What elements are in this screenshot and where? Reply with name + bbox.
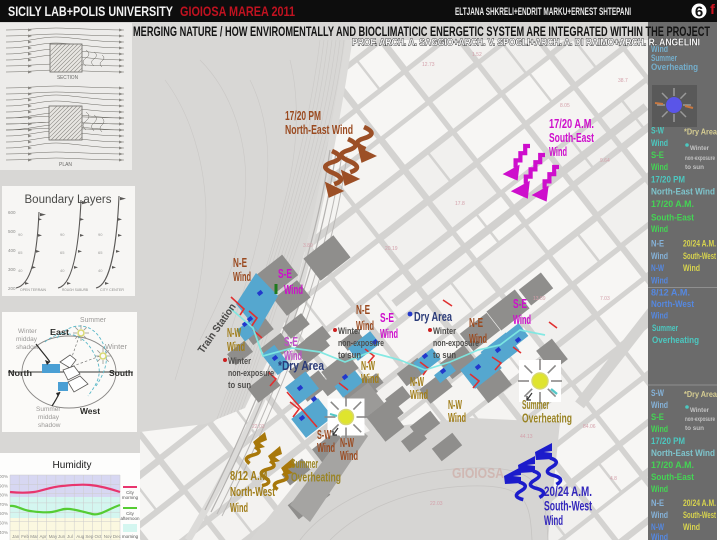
svg-text:Jan: Jan — [12, 534, 20, 539]
svg-text:70%: 70% — [0, 502, 8, 507]
svg-text:South-East: South-East — [549, 131, 595, 145]
svg-text:Aug: Aug — [76, 534, 85, 539]
svg-text:*Dry Area: *Dry Area — [278, 359, 325, 373]
svg-text:N-E: N-E — [356, 303, 370, 317]
svg-text:S-W: S-W — [317, 428, 331, 442]
svg-text:PLAN: PLAN — [59, 162, 72, 168]
svg-text:6: 6 — [695, 4, 703, 21]
svg-text:Dry Area: Dry Area — [414, 310, 453, 324]
svg-text:PROF. ARCH. A. SAGGIO+ARCH. V.: PROF. ARCH. A. SAGGIO+ARCH. V. SPOGLI+AR… — [352, 37, 700, 49]
svg-text:38.7: 38.7 — [618, 78, 628, 84]
svg-text:Wind: Wind — [544, 513, 563, 528]
svg-text:8/12 A.M.: 8/12 A.M. — [651, 288, 690, 298]
svg-text:Winter: Winter — [690, 145, 709, 152]
svg-text:Summer: Summer — [80, 317, 107, 324]
svg-text:SICILY LAB+POLIS UNIVERSITY: SICILY LAB+POLIS UNIVERSITY — [8, 3, 174, 19]
svg-text:17/20 A.M.: 17/20 A.M. — [651, 199, 694, 209]
svg-text:Wind: Wind — [448, 411, 466, 425]
svg-text:65: 65 — [60, 250, 65, 255]
svg-text:S-W: S-W — [651, 388, 664, 398]
svg-text:Sep: Sep — [85, 534, 94, 539]
svg-text:Wind: Wind — [513, 313, 531, 327]
svg-text:20.19: 20.19 — [385, 246, 398, 252]
svg-text:N-W: N-W — [448, 398, 462, 412]
svg-text:North-East Wind: North-East Wind — [651, 448, 715, 458]
svg-text:non-exposure: non-exposure — [685, 416, 715, 423]
svg-text:N-W: N-W — [361, 359, 375, 373]
svg-text:South: South — [109, 369, 133, 378]
svg-text:North: North — [8, 369, 32, 378]
svg-text:17/20 A.M.: 17/20 A.M. — [549, 117, 594, 131]
svg-text:80%: 80% — [0, 493, 8, 498]
svg-text:17/20 PM: 17/20 PM — [285, 109, 321, 123]
svg-text:South-West: South-West — [683, 510, 716, 520]
svg-text:Jun: Jun — [58, 534, 66, 539]
svg-text:44.13: 44.13 — [520, 434, 533, 440]
svg-text:Wind: Wind — [651, 251, 668, 261]
svg-text:S-E: S-E — [284, 335, 298, 349]
svg-text:shadow: shadow — [38, 422, 61, 429]
svg-text:morning: morning — [122, 534, 139, 539]
svg-text:20/24 A.M.: 20/24 A.M. — [683, 239, 716, 249]
svg-text:Feb: Feb — [21, 534, 29, 539]
svg-text:N-E: N-E — [651, 498, 664, 508]
svg-text:Wind: Wind — [651, 162, 668, 172]
svg-text:Winter: Winter — [338, 326, 361, 337]
svg-text:GIOIOSA MAREA 2011: GIOIOSA MAREA 2011 — [180, 3, 295, 19]
svg-text:Overheating: Overheating — [522, 412, 572, 426]
svg-text:500: 500 — [8, 229, 16, 234]
svg-text:North-East Wind: North-East Wind — [651, 187, 715, 197]
svg-text:N-W: N-W — [340, 436, 354, 450]
svg-text:12.73: 12.73 — [422, 62, 435, 68]
svg-text:Overheating: Overheating — [652, 335, 699, 345]
svg-text:17/20 PM: 17/20 PM — [651, 436, 685, 446]
svg-text:17/20 PM: 17/20 PM — [651, 174, 685, 184]
svg-text:Wind: Wind — [651, 424, 668, 434]
svg-text:65: 65 — [98, 250, 103, 255]
svg-text:Wind: Wind — [284, 283, 303, 297]
svg-text:South-West: South-West — [544, 499, 592, 514]
svg-text:to sun: to sun — [338, 350, 361, 361]
svg-text:shadow: shadow — [16, 344, 39, 351]
svg-text:N-E: N-E — [651, 239, 664, 249]
svg-text:100%: 100% — [0, 474, 8, 479]
svg-text:CITY CENTER: CITY CENTER — [100, 287, 124, 292]
svg-text:Wind: Wind — [469, 332, 487, 346]
svg-text:S-E: S-E — [278, 267, 292, 281]
svg-text:40: 40 — [60, 268, 65, 273]
svg-text:Overheating: Overheating — [291, 471, 341, 485]
svg-text:60%: 60% — [0, 511, 8, 516]
svg-text:Wind: Wind — [651, 532, 668, 540]
svg-text:Dec: Dec — [113, 534, 122, 539]
svg-text:Wind: Wind — [683, 263, 700, 273]
svg-text:Wind: Wind — [651, 224, 668, 234]
svg-text:N-E: N-E — [469, 316, 483, 330]
svg-text:90%: 90% — [0, 483, 8, 488]
svg-text:May: May — [49, 534, 58, 539]
svg-text:N-W: N-W — [651, 263, 664, 273]
svg-text:13.89: 13.89 — [533, 296, 546, 302]
svg-text:Wind: Wind — [233, 270, 251, 284]
svg-text:22.03: 22.03 — [252, 424, 265, 430]
svg-text:Wind: Wind — [549, 145, 567, 159]
svg-text:Boundary Layers: Boundary Layers — [25, 194, 112, 206]
svg-text:West: West — [80, 407, 100, 416]
svg-text:Wind: Wind — [651, 484, 668, 494]
svg-text:OPEN TERRAIN: OPEN TERRAIN — [20, 287, 46, 292]
svg-text:Wind: Wind — [361, 372, 379, 386]
svg-text:Wind: Wind — [651, 400, 668, 410]
svg-text:ELTJANA SHKRELI+ENDRIT MARKU+E: ELTJANA SHKRELI+ENDRIT MARKU+ERNEST SHTE… — [455, 6, 631, 18]
svg-text:17/20 A.M.: 17/20 A.M. — [651, 460, 694, 470]
svg-text:Winter: Winter — [105, 344, 128, 351]
svg-text:GIOIOSA: GIOIOSA — [452, 465, 504, 482]
svg-text:40: 40 — [98, 268, 103, 273]
svg-text:to sun: to sun — [433, 350, 456, 361]
svg-text:4.8: 4.8 — [610, 476, 617, 482]
svg-text:Wind: Wind — [651, 311, 668, 321]
svg-text:7.03: 7.03 — [600, 296, 610, 302]
svg-text:Wind: Wind — [651, 138, 668, 148]
svg-text:Summer: Summer — [36, 406, 61, 413]
svg-text:Mar: Mar — [30, 534, 38, 539]
svg-text:to sun: to sun — [685, 164, 704, 171]
svg-text:non-exposure: non-exposure — [338, 338, 384, 349]
svg-text:non-exposure: non-exposure — [228, 368, 274, 379]
svg-text:Winter: Winter — [690, 407, 709, 414]
svg-text:Wind: Wind — [230, 501, 248, 515]
svg-text:East: East — [50, 328, 69, 337]
svg-text:17.8: 17.8 — [455, 201, 465, 207]
svg-text:Wind: Wind — [651, 275, 668, 285]
svg-text:90: 90 — [60, 232, 65, 237]
svg-text:non-exposure: non-exposure — [685, 155, 715, 162]
svg-text:f: f — [710, 1, 715, 17]
svg-text:Wind: Wind — [227, 340, 245, 354]
svg-text:20/24 A.M.: 20/24 A.M. — [544, 484, 592, 499]
svg-text:Jul: Jul — [67, 534, 73, 539]
svg-text:South-East: South-East — [651, 472, 694, 482]
svg-text:50%: 50% — [0, 521, 8, 526]
svg-text:65: 65 — [18, 250, 23, 255]
svg-text:Nov: Nov — [104, 534, 113, 539]
svg-text:S-E: S-E — [513, 297, 527, 311]
svg-text:Oct: Oct — [95, 534, 103, 539]
svg-text:8/12 A.M.: 8/12 A.M. — [230, 469, 270, 483]
svg-text:84.06: 84.06 — [583, 424, 596, 430]
svg-text:N-W: N-W — [410, 375, 424, 389]
svg-text:90: 90 — [18, 232, 23, 237]
svg-text:afternoon: afternoon — [120, 516, 140, 521]
svg-text:morning: morning — [122, 495, 139, 500]
svg-text:40: 40 — [18, 268, 23, 273]
svg-text:300: 300 — [8, 267, 16, 272]
svg-text:N-W: N-W — [227, 326, 241, 340]
svg-text:Summer: Summer — [522, 398, 549, 412]
svg-text:North-West: North-West — [651, 299, 694, 309]
svg-text:N-W: N-W — [651, 522, 664, 532]
svg-text:Summer: Summer — [291, 457, 318, 471]
svg-text:90: 90 — [98, 232, 103, 237]
svg-text:20/24 A.M.: 20/24 A.M. — [683, 498, 716, 508]
svg-text:S-E: S-E — [651, 412, 664, 422]
svg-text:Summer: Summer — [652, 323, 678, 333]
svg-text:200: 200 — [8, 286, 16, 291]
svg-text:400: 400 — [8, 248, 16, 253]
svg-text:South-East: South-East — [651, 213, 694, 223]
svg-text:Wind: Wind — [317, 441, 335, 455]
svg-text:midday: midday — [16, 336, 38, 343]
svg-text:North-East Wind: North-East Wind — [285, 123, 353, 137]
svg-text:S-W: S-W — [651, 126, 664, 136]
svg-text:1.52: 1.52 — [472, 52, 482, 58]
svg-text:Winter: Winter — [433, 326, 456, 337]
svg-text:8.05: 8.05 — [560, 103, 570, 109]
svg-text:3.89: 3.89 — [303, 243, 313, 249]
svg-text:Apr: Apr — [40, 534, 48, 539]
svg-text:Wind: Wind — [340, 449, 358, 463]
svg-text:to sun: to sun — [228, 380, 251, 391]
svg-text:Wind: Wind — [410, 388, 428, 402]
svg-text:40%: 40% — [0, 530, 8, 535]
svg-text:midday: midday — [38, 414, 60, 421]
svg-text:22.03: 22.03 — [430, 501, 443, 507]
svg-text:South-West: South-West — [683, 251, 716, 261]
svg-text:*Dry Area: *Dry Area — [684, 128, 717, 137]
svg-text:SECTION: SECTION — [57, 75, 78, 81]
svg-text:Wind: Wind — [683, 522, 700, 532]
svg-text:9.64: 9.64 — [600, 158, 610, 164]
svg-text:to sun: to sun — [685, 425, 704, 432]
svg-text:S-E: S-E — [380, 311, 394, 325]
svg-text:Winter: Winter — [228, 356, 251, 367]
svg-text:Humidity: Humidity — [53, 460, 92, 471]
svg-text:600: 600 — [8, 210, 16, 215]
svg-text:S-E: S-E — [651, 150, 664, 160]
svg-text:North-West: North-West — [230, 485, 276, 499]
svg-text:Wind: Wind — [651, 510, 668, 520]
svg-text:Overheating: Overheating — [651, 62, 698, 72]
svg-text:ROUGH SUBURB: ROUGH SUBURB — [62, 287, 88, 292]
svg-text:N-E: N-E — [233, 256, 247, 270]
svg-text:Winter: Winter — [18, 328, 38, 335]
svg-text:*Dry Area: *Dry Area — [684, 390, 717, 399]
